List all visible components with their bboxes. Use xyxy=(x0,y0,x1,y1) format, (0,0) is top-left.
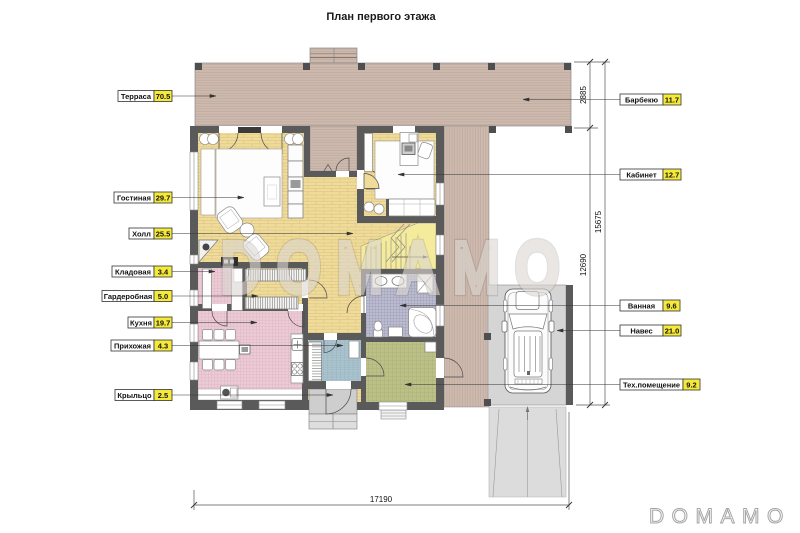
svg-text:Тех.помещение: Тех.помещение xyxy=(623,381,680,390)
svg-text:Крыльцо: Крыльцо xyxy=(117,391,152,400)
svg-text:9.2: 9.2 xyxy=(686,381,696,390)
svg-text:3.4: 3.4 xyxy=(158,268,169,277)
svg-text:5.0: 5.0 xyxy=(158,292,168,301)
svg-text:Терраса: Терраса xyxy=(121,92,152,101)
svg-text:11.7: 11.7 xyxy=(665,96,679,105)
svg-text:Кабинет: Кабинет xyxy=(626,171,657,180)
svg-text:Прихожая: Прихожая xyxy=(114,342,151,351)
svg-text:Гостиная: Гостиная xyxy=(117,194,151,203)
svg-text:29.7: 29.7 xyxy=(156,194,171,203)
svg-text:9.6: 9.6 xyxy=(666,302,676,311)
svg-text:21.0: 21.0 xyxy=(665,327,680,336)
svg-text:70.5: 70.5 xyxy=(156,92,171,101)
svg-text:4.3: 4.3 xyxy=(158,342,168,351)
svg-text:Навес: Навес xyxy=(630,327,652,336)
svg-text:2.5: 2.5 xyxy=(158,391,168,400)
svg-text:Ванная: Ванная xyxy=(628,302,655,311)
svg-text:25.5: 25.5 xyxy=(156,230,171,239)
svg-text:Холл: Холл xyxy=(132,230,151,239)
svg-text:19.7: 19.7 xyxy=(156,319,171,328)
svg-text:Кладовая: Кладовая xyxy=(115,268,151,277)
svg-text:12.7: 12.7 xyxy=(665,171,680,180)
svg-text:Барбекю: Барбекю xyxy=(625,96,659,105)
svg-text:Кухня: Кухня xyxy=(130,319,152,328)
svg-text:Гардеробная: Гардеробная xyxy=(104,292,153,301)
